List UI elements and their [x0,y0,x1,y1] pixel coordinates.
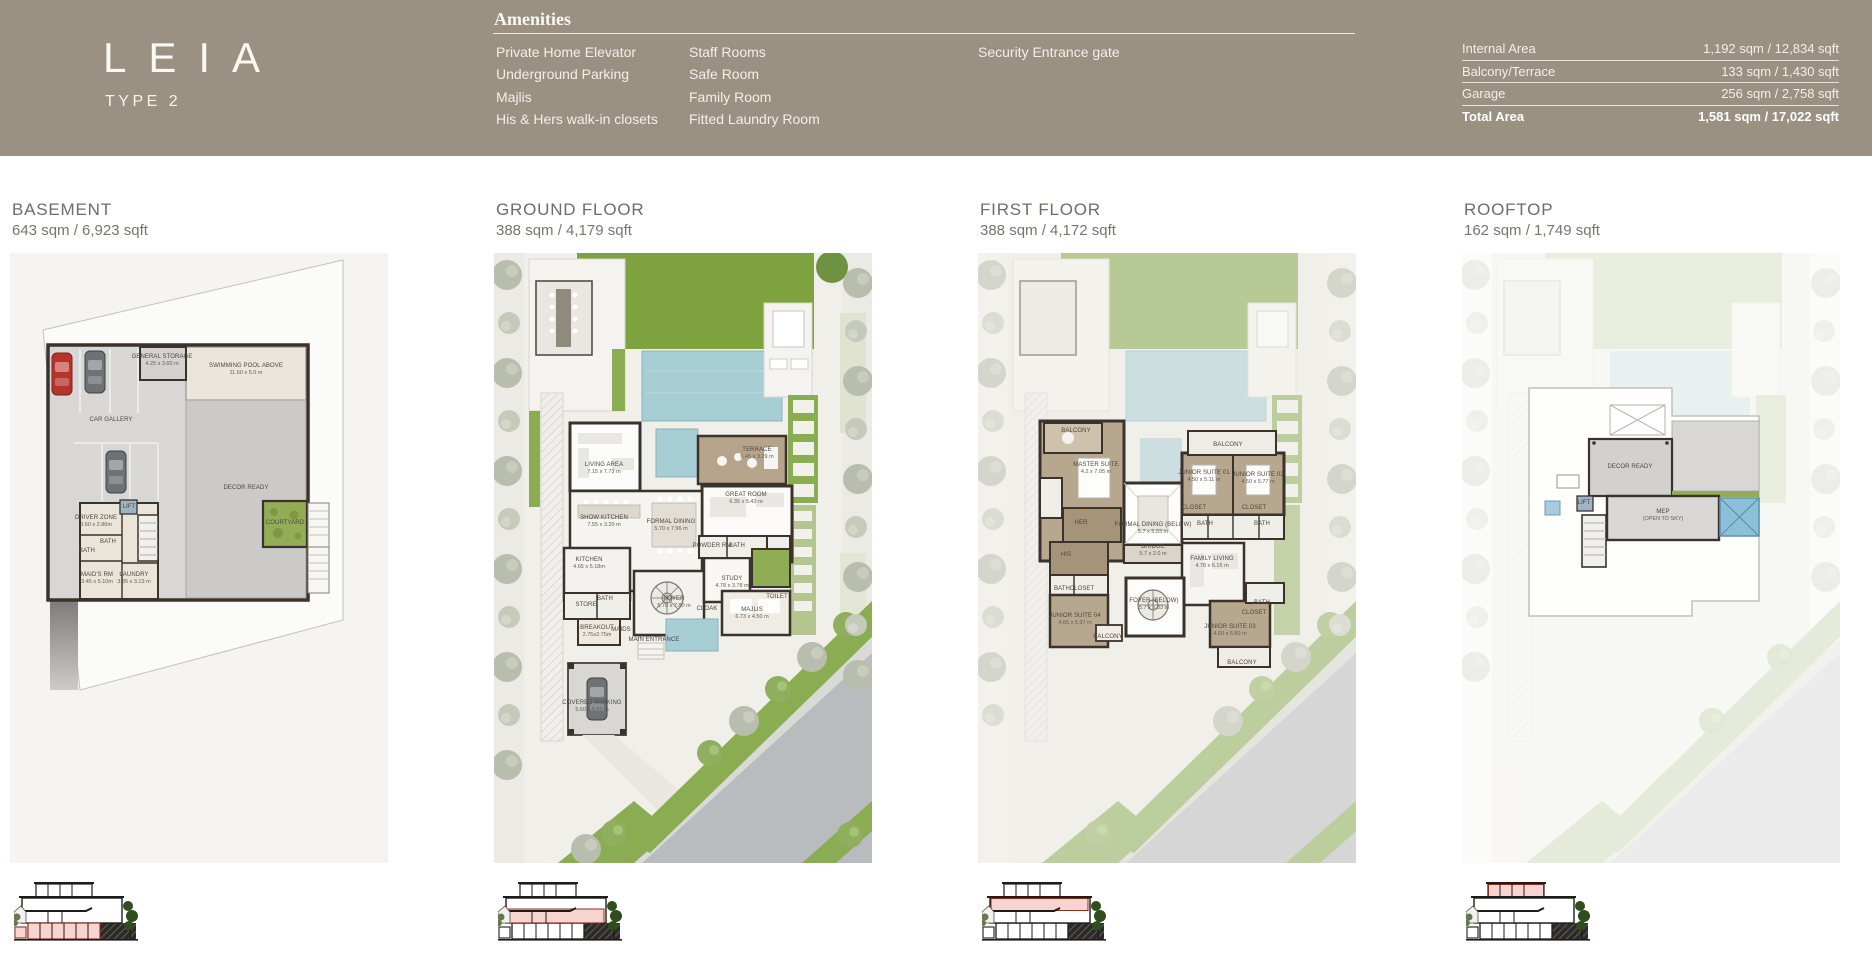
brand-subtitle: TYPE 2 [105,93,181,111]
floor-title: FIRST FLOOR [980,200,1101,220]
floor-title: GROUND FLOOR [496,200,644,220]
area-row: Balcony/Terrace133 sqm / 1,430 sqft [1462,61,1839,84]
section-diagram-rooftop [1466,876,1598,948]
basement-plan-drawing [10,253,388,863]
area-row-value: 1,192 sqm / 12,834 sqft [1703,41,1839,56]
floor-area-text: 388 sqm / 4,179 sqft [496,222,632,239]
area-row-label: Internal Area [1462,41,1536,56]
area-row: Garage256 sqm / 2,758 sqft [1462,83,1839,106]
section-diagram-basement [14,876,146,948]
rooftop-plan-drawing [1462,253,1840,863]
rooftop-floor-plan: DECOR READYLIFTMEP(OPEN TO SKY) [1462,253,1840,863]
section-diagram-ground [498,876,630,948]
amenities-divider [493,33,1355,34]
amenity-item: Private Home Elevator [496,41,658,63]
amenities-title: Amenities [494,9,571,30]
amenity-item: Underground Parking [496,63,658,85]
floor-area-text: 643 sqm / 6,923 sqft [12,222,148,239]
amenity-item: Majlis [496,86,658,108]
area-row-value: 256 sqm / 2,758 sqft [1721,86,1839,101]
amenity-item: Fitted Laundry Room [689,108,820,130]
floor-title: ROOFTOP [1464,200,1553,220]
floor-area-text: 388 sqm / 4,172 sqft [980,222,1116,239]
amenity-item: Family Room [689,86,820,108]
area-row-label: Balcony/Terrace [1462,64,1555,79]
amenity-item: Safe Room [689,63,820,85]
area-row-value: 1,581 sqm / 17,022 sqft [1698,109,1839,124]
ground-plan-drawing [494,253,872,863]
amenities-column-3: Security Entrance gate [978,41,1120,63]
brand-logo: LEIA [103,34,282,82]
area-row-value: 133 sqm / 1,430 sqft [1721,64,1839,79]
amenity-item: Security Entrance gate [978,41,1120,63]
floor-area-text: 162 sqm / 1,749 sqft [1464,222,1600,239]
area-summary-table: Internal Area1,192 sqm / 12,834 sqftBalc… [1462,38,1839,127]
first-floor-plan: BALCONYBALCONYMASTER SUITE4.2 x 7.05 mJU… [978,253,1356,863]
amenity-item: Staff Rooms [689,41,820,63]
floor-title: BASEMENT [12,200,112,220]
amenities-column-1: Private Home ElevatorUnderground Parking… [496,41,658,131]
area-row-label: Total Area [1462,109,1524,124]
header-bar: LEIA TYPE 2 Amenities Private Home Eleva… [0,0,1872,156]
basement-floor-plan: GENERAL STORAGE4.25 x 3.60 mSWIMMING POO… [10,253,388,863]
area-row: Internal Area1,192 sqm / 12,834 sqft [1462,38,1839,61]
amenity-item: His & Hers walk-in closets [496,108,658,130]
section-diagram-first [982,876,1114,948]
area-row-label: Garage [1462,86,1505,101]
first-plan-drawing [978,253,1356,863]
area-row: Total Area1,581 sqm / 17,022 sqft [1462,106,1839,128]
amenities-column-2: Staff RoomsSafe RoomFamily RoomFitted La… [689,41,820,131]
ground-floor-plan: LIVING AREA7.15 x 7.73 mTERRACE6.45 x 3.… [494,253,872,863]
